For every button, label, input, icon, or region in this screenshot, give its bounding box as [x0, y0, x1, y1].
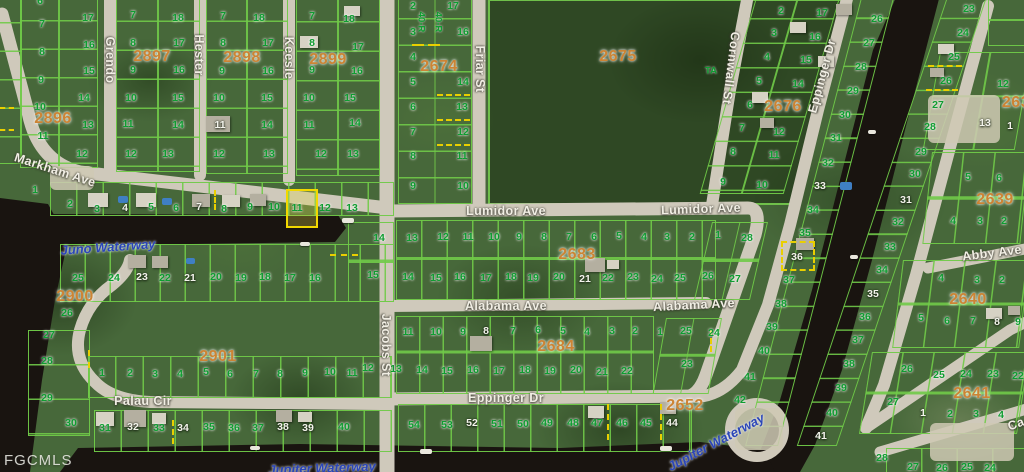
- lot-number[interactable]: 6: [747, 99, 753, 111]
- lot-number[interactable]: 45: [640, 417, 652, 429]
- lot-number[interactable]: 48: [567, 417, 579, 429]
- lot-number[interactable]: 12: [362, 362, 374, 374]
- lot-number[interactable]: 9: [516, 231, 522, 243]
- lot-number[interactable]: 29: [847, 85, 859, 97]
- lot-number[interactable]: 8: [483, 325, 489, 337]
- mls-watermark: FGCMLS: [4, 452, 73, 469]
- lot-number[interactable]: 2: [410, 0, 416, 12]
- lot-number[interactable]: 39: [766, 321, 778, 333]
- lot-number[interactable]: 31: [900, 194, 912, 206]
- lot-number[interactable]: 14: [792, 78, 804, 90]
- lot-number[interactable]: 9: [720, 176, 726, 188]
- lot-number[interactable]: 16: [467, 364, 479, 376]
- lot-number[interactable]: 17: [493, 365, 505, 377]
- lot-number[interactable]: 9: [1015, 316, 1021, 328]
- lot-number[interactable]: 32: [822, 157, 834, 169]
- lot-number[interactable]: 33: [153, 422, 165, 434]
- lot-number[interactable]: 15: [344, 92, 356, 104]
- lot-number[interactable]: 28: [741, 232, 753, 244]
- block-number: 2901: [199, 348, 237, 366]
- block-number: 2675: [599, 48, 637, 66]
- lot-number[interactable]: 25: [961, 461, 973, 472]
- lot-number[interactable]: 17: [480, 272, 492, 284]
- lot-number[interactable]: 13: [979, 117, 991, 129]
- lot-number[interactable]: 6: [37, 0, 43, 7]
- lot-number[interactable]: 39: [835, 382, 847, 394]
- street-label: Eppinger Dr: [468, 391, 544, 405]
- lot-number[interactable]: 14: [78, 92, 90, 104]
- block-number: 2684: [537, 338, 575, 356]
- lot-number[interactable]: 25: [948, 51, 960, 63]
- lot-number[interactable]: 15: [261, 92, 273, 104]
- lot-number[interactable]: 36: [859, 311, 871, 323]
- lot-number[interactable]: 3: [771, 27, 777, 39]
- lot-number[interactable]: 16: [262, 65, 274, 77]
- lot-number[interactable]: 39: [302, 422, 314, 434]
- lot-number[interactable]: 10: [268, 201, 280, 213]
- lot-number[interactable]: 13: [456, 101, 468, 113]
- lot-number[interactable]: 23: [627, 271, 639, 283]
- lot-number[interactable]: 5: [560, 325, 566, 337]
- lot-number[interactable]: 10: [125, 92, 137, 104]
- lot-number[interactable]: 51: [491, 418, 503, 430]
- lot-number[interactable]: 13: [162, 148, 174, 160]
- lot-number[interactable]: 11: [122, 118, 133, 130]
- lot-number[interactable]: 16: [809, 31, 821, 43]
- lot-number[interactable]: 12: [773, 126, 785, 138]
- lot-number[interactable]: 7: [970, 315, 976, 327]
- lot-number[interactable]: 46: [616, 417, 628, 429]
- lot-number[interactable]: 25: [933, 369, 945, 381]
- lot-number[interactable]: 18: [505, 271, 517, 283]
- lot-number[interactable]: 29: [915, 146, 927, 158]
- lot-number[interactable]: 20: [210, 271, 222, 283]
- block-number: 2676: [764, 98, 802, 116]
- plat-annotation: 40-R: [416, 12, 427, 33]
- lot-number[interactable]: 38: [775, 298, 787, 310]
- lot-number[interactable]: 14: [261, 119, 273, 131]
- lot-number[interactable]: 19: [235, 272, 247, 284]
- lot-number[interactable]: 7: [410, 126, 416, 138]
- lot-number[interactable]: 3: [974, 274, 980, 286]
- lot-number[interactable]: 38: [843, 358, 855, 370]
- lot-number[interactable]: 6: [944, 315, 950, 327]
- lot-number[interactable]: 12: [315, 148, 327, 160]
- lot-number[interactable]: 15: [441, 365, 453, 377]
- lot-number[interactable]: 2: [67, 198, 73, 210]
- waterway-label: Jupiter Waterway: [268, 459, 376, 472]
- lot-number[interactable]: 27: [863, 37, 875, 49]
- lot-number[interactable]: 18: [519, 364, 531, 376]
- lot-number[interactable]: 23: [987, 368, 999, 380]
- lot-number[interactable]: 33: [884, 241, 896, 253]
- lot-number[interactable]: 23: [136, 271, 148, 283]
- lot-number[interactable]: 11: [768, 149, 779, 161]
- lot-number[interactable]: 13: [263, 148, 275, 160]
- lot-number[interactable]: 44: [666, 417, 678, 429]
- lot-number[interactable]: 5: [965, 171, 971, 183]
- lot-number[interactable]: 12: [76, 148, 88, 160]
- lot-number[interactable]: 8: [994, 316, 1000, 328]
- lot-number[interactable]: 6: [410, 101, 416, 113]
- lot-number[interactable]: 5: [410, 76, 416, 88]
- lot-number[interactable]: 4: [998, 409, 1004, 421]
- lot-number[interactable]: 25: [72, 272, 84, 284]
- lot-number[interactable]: 2: [127, 367, 133, 379]
- lot-number[interactable]: 22: [1012, 370, 1024, 382]
- lot-number[interactable]: 27: [907, 461, 919, 472]
- lot-number[interactable]: 9: [460, 326, 466, 338]
- parcel-map-canvas[interactable]: 6789101117161514131278910111218171615141…: [0, 0, 1024, 472]
- street-label: Ca: [1006, 415, 1024, 434]
- lot-number[interactable]: 26: [901, 363, 913, 375]
- lot-number[interactable]: 26: [61, 307, 73, 319]
- lot-number[interactable]: 37: [783, 274, 795, 286]
- lot-number[interactable]: 14: [416, 364, 428, 376]
- street-label: Hester: [192, 34, 206, 75]
- lot-number[interactable]: 35: [203, 421, 215, 433]
- street-label: Jacobs St: [379, 314, 393, 377]
- lot-number[interactable]: 31: [830, 132, 842, 144]
- lot-number[interactable]: 12: [457, 126, 469, 138]
- lot-number[interactable]: 5: [756, 75, 762, 87]
- lot-number[interactable]: 7: [196, 201, 202, 213]
- lot-number[interactable]: 14: [349, 117, 361, 129]
- lot-number[interactable]: 14: [402, 271, 414, 283]
- lot-number[interactable]: 16: [173, 64, 185, 76]
- lot-number[interactable]: 26: [702, 270, 714, 282]
- lot-number[interactable]: 24: [984, 462, 996, 472]
- street-label: Friar St: [473, 46, 487, 93]
- lot-number[interactable]: 18: [259, 271, 271, 283]
- lot-number[interactable]: 14: [457, 76, 469, 88]
- lot-number[interactable]: 32: [127, 421, 139, 433]
- lot-number[interactable]: 6: [227, 368, 233, 380]
- lot-number[interactable]: 2: [947, 408, 953, 420]
- lot-number[interactable]: 28: [855, 61, 867, 73]
- lot-number[interactable]: 7: [566, 231, 572, 243]
- plat-annotation: 40-R: [433, 12, 444, 33]
- lot-number[interactable]: 35: [799, 227, 811, 239]
- lot-number[interactable]: 28: [924, 121, 936, 133]
- lot-number[interactable]: 2: [632, 325, 638, 337]
- lot-number[interactable]: 24: [957, 27, 969, 39]
- lot-number[interactable]: 25: [674, 272, 686, 284]
- lot-number[interactable]: 15: [83, 65, 95, 77]
- lot-number[interactable]: 10: [303, 92, 315, 104]
- lot-number[interactable]: 14: [373, 232, 385, 244]
- lot-number[interactable]: 1: [1007, 120, 1013, 132]
- lot-number[interactable]: 7: [130, 9, 136, 21]
- lot-number[interactable]: 8: [730, 146, 736, 158]
- street-label: Lumidor Ave: [466, 204, 546, 218]
- lot-number[interactable]: 15: [172, 92, 184, 104]
- lot-number[interactable]: 3: [152, 368, 158, 380]
- lot-number[interactable]: 4: [641, 231, 647, 243]
- map-labels-layer: 6789101117161514131278910111218171615141…: [0, 0, 1024, 472]
- block-number: 263: [1002, 94, 1024, 112]
- lot-number[interactable]: 9: [410, 180, 416, 192]
- lot-number[interactable]: 37: [252, 422, 264, 434]
- lot-number[interactable]: 11: [456, 150, 467, 162]
- lot-number[interactable]: 24: [651, 273, 663, 285]
- lot-number[interactable]: 27: [43, 329, 55, 341]
- lot-number[interactable]: 1: [99, 367, 105, 379]
- lot-number[interactable]: 13: [406, 232, 418, 244]
- street-label: Abby Ave: [961, 242, 1022, 263]
- lot-number[interactable]: 2: [999, 274, 1005, 286]
- lot-number[interactable]: 17: [816, 7, 828, 19]
- lot-number[interactable]: 9: [247, 201, 253, 213]
- lot-number[interactable]: 10: [488, 231, 500, 243]
- lot-number[interactable]: 2: [778, 5, 784, 17]
- lot-number[interactable]: 4: [584, 326, 590, 338]
- lot-number[interactable]: 6: [996, 172, 1002, 184]
- lot-number[interactable]: 24: [108, 272, 120, 284]
- lot-number[interactable]: 3: [94, 203, 100, 215]
- lot-number[interactable]: 21: [596, 366, 608, 378]
- waterway-label: Jupiter Waterway: [665, 410, 767, 472]
- block-number: 2896: [34, 110, 72, 128]
- lot-number[interactable]: 52: [466, 417, 478, 429]
- lot-number[interactable]: 2: [1001, 215, 1007, 227]
- lot-number[interactable]: 40: [338, 421, 350, 433]
- lot-number[interactable]: 7: [510, 325, 516, 337]
- street-label: Lumidor Ave: [661, 201, 741, 218]
- lot-number[interactable]: 7: [309, 10, 315, 22]
- lot-number[interactable]: 6: [591, 231, 597, 243]
- lot-number[interactable]: 27: [932, 99, 944, 111]
- lot-number[interactable]: 16: [309, 272, 321, 284]
- block-number: 2640: [949, 291, 987, 309]
- lot-number[interactable]: 7: [220, 10, 226, 22]
- lot-number[interactable]: 21: [579, 273, 591, 285]
- lot-number[interactable]: 13: [347, 148, 359, 160]
- lot-number[interactable]: 40: [826, 407, 838, 419]
- lot-number[interactable]: 38: [277, 421, 289, 433]
- lot-number[interactable]: 12: [319, 202, 331, 214]
- lot-number[interactable]: 30: [909, 168, 921, 180]
- lot-number[interactable]: 8: [541, 231, 547, 243]
- lot-number[interactable]: 34: [177, 422, 189, 434]
- lot-number[interactable]: 34: [807, 204, 819, 216]
- lot-number[interactable]: 23: [681, 358, 693, 370]
- lot-number[interactable]: 28: [876, 452, 888, 464]
- lot-number[interactable]: 16: [454, 271, 466, 283]
- lot-number[interactable]: 24: [708, 327, 720, 339]
- street-label: Keesle: [282, 37, 296, 80]
- block-number: 2899: [309, 51, 347, 69]
- lot-number[interactable]: 13: [82, 119, 94, 131]
- block-number: 2639: [976, 191, 1014, 209]
- lot-number[interactable]: 17: [284, 272, 296, 284]
- street-label: Alabama Ave: [653, 296, 736, 314]
- lot-number[interactable]: 41: [815, 430, 827, 442]
- lot-number[interactable]: 28: [41, 355, 53, 367]
- waterway-label: Juno Waterway: [60, 236, 156, 258]
- lot-number[interactable]: 10: [324, 366, 336, 378]
- lot-number[interactable]: 16: [351, 65, 363, 77]
- lot-number[interactable]: 17: [262, 37, 274, 49]
- lot-number[interactable]: 15: [367, 269, 379, 281]
- lot-number[interactable]: 54: [408, 419, 420, 431]
- lot-number[interactable]: 37: [852, 334, 864, 346]
- lot-number[interactable]: 12: [213, 148, 225, 160]
- lot-number[interactable]: 3: [609, 325, 615, 337]
- lot-number[interactable]: 41: [744, 371, 756, 383]
- lot-number[interactable]: 10: [213, 92, 225, 104]
- lot-number[interactable]: 49: [541, 417, 553, 429]
- lot-number[interactable]: 8: [221, 203, 227, 215]
- lot-number[interactable]: 12: [997, 78, 1009, 90]
- lot-number[interactable]: 5: [148, 201, 154, 213]
- lot-number[interactable]: 22: [602, 272, 614, 284]
- lot-number[interactable]: 9: [38, 74, 44, 86]
- lot-number[interactable]: 11: [402, 326, 413, 338]
- lot-number[interactable]: 20: [570, 364, 582, 376]
- lot-number[interactable]: 1: [657, 326, 663, 338]
- lot-number[interactable]: 3: [664, 231, 670, 243]
- lot-number[interactable]: 4: [938, 272, 944, 284]
- lot-number[interactable]: 1: [920, 407, 926, 419]
- lot-number[interactable]: 22: [159, 272, 171, 284]
- lot-number[interactable]: 11: [346, 367, 357, 379]
- lot-number[interactable]: 23: [963, 3, 975, 15]
- lot-number[interactable]: 25: [680, 325, 692, 337]
- lot-number[interactable]: 27: [887, 396, 899, 408]
- lot-number[interactable]: 24: [960, 368, 972, 380]
- lot-number[interactable]: 18: [172, 12, 184, 24]
- lot-number[interactable]: 4: [764, 51, 770, 63]
- lot-number[interactable]: 16: [457, 26, 469, 38]
- lot-number[interactable]: 8: [309, 37, 315, 49]
- lot-number[interactable]: 17: [352, 41, 364, 53]
- lot-number[interactable]: 9: [302, 367, 308, 379]
- lot-number[interactable]: 47: [591, 417, 603, 429]
- lot-number[interactable]: 6: [535, 324, 541, 336]
- lot-number[interactable]: 26: [936, 462, 948, 472]
- lot-number[interactable]: 11: [37, 130, 48, 142]
- lot-number[interactable]: 40: [758, 345, 770, 357]
- lot-number[interactable]: 17: [82, 12, 94, 24]
- lot-number[interactable]: 32: [892, 216, 904, 228]
- lot-number[interactable]: 17: [173, 37, 185, 49]
- lot-number[interactable]: 11: [303, 119, 314, 131]
- lot-number[interactable]: 5: [616, 230, 622, 242]
- street-label: Eppinger Dr: [805, 38, 838, 115]
- lot-number[interactable]: 50: [517, 418, 529, 430]
- plat-annotation: TA: [705, 66, 717, 77]
- lot-number[interactable]: 18: [343, 13, 355, 25]
- lot-number[interactable]: 7: [39, 18, 45, 30]
- lot-number[interactable]: 11: [291, 202, 302, 214]
- lot-number[interactable]: 12: [437, 231, 449, 243]
- street-label: Cornwall St: [720, 31, 743, 105]
- lot-number[interactable]: 7: [253, 368, 259, 380]
- lot-number[interactable]: 26: [940, 75, 952, 87]
- block-number: 2652: [666, 397, 704, 415]
- lot-number[interactable]: 2: [689, 231, 695, 243]
- lot-number[interactable]: 21: [184, 272, 196, 284]
- lot-number[interactable]: 4: [950, 215, 956, 227]
- lot-number[interactable]: 4: [177, 368, 183, 380]
- block-number: 2683: [558, 246, 596, 264]
- lot-number[interactable]: 5: [203, 366, 209, 378]
- lot-number[interactable]: 10: [430, 326, 442, 338]
- lot-number[interactable]: 19: [527, 272, 539, 284]
- lot-number[interactable]: 26: [871, 13, 883, 25]
- lot-number[interactable]: 22: [621, 365, 633, 377]
- lot-number[interactable]: 33: [814, 180, 826, 192]
- lot-number[interactable]: 16: [83, 39, 95, 51]
- lot-number[interactable]: 10: [457, 180, 469, 192]
- lot-number[interactable]: 8: [39, 46, 45, 58]
- street-label: Palau Cir: [114, 394, 172, 408]
- street-label: Alabama Ave: [465, 299, 547, 313]
- lot-number[interactable]: 35: [867, 288, 879, 300]
- lot-number[interactable]: 14: [172, 119, 184, 131]
- lot-number[interactable]: 30: [839, 109, 851, 121]
- lot-number[interactable]: 27: [729, 273, 741, 285]
- street-label: Grendo: [103, 37, 117, 84]
- lot-number[interactable]: 10: [756, 179, 768, 191]
- lot-number[interactable]: 11: [462, 231, 473, 243]
- lot-number[interactable]: 36: [791, 251, 803, 263]
- lot-number[interactable]: 5: [918, 312, 924, 324]
- lot-number[interactable]: 29: [41, 392, 53, 404]
- lot-number[interactable]: 42: [734, 394, 746, 406]
- lot-number[interactable]: 36: [228, 422, 240, 434]
- lot-number[interactable]: 13: [346, 202, 358, 214]
- lot-number[interactable]: 6: [173, 202, 179, 214]
- lot-number[interactable]: 18: [253, 12, 265, 24]
- lot-number[interactable]: 4: [122, 202, 128, 214]
- lot-number[interactable]: 15: [430, 272, 442, 284]
- block-number: 2900: [56, 288, 94, 306]
- lot-number[interactable]: 8: [277, 368, 283, 380]
- lot-number[interactable]: 15: [800, 54, 812, 66]
- lot-number[interactable]: 53: [441, 419, 453, 431]
- block-number: 2898: [223, 49, 261, 67]
- lot-number[interactable]: 3: [977, 215, 983, 227]
- lot-number[interactable]: 8: [220, 37, 226, 49]
- lot-number[interactable]: 1: [715, 229, 721, 241]
- lot-number[interactable]: 17: [447, 0, 459, 12]
- lot-number[interactable]: 4: [410, 51, 416, 63]
- block-number: 2674: [420, 58, 458, 76]
- lot-number[interactable]: 12: [125, 148, 137, 160]
- lot-number[interactable]: 20: [553, 271, 565, 283]
- lot-number[interactable]: 30: [65, 417, 77, 429]
- lot-number[interactable]: 7: [739, 122, 745, 134]
- block-number: 2641: [953, 385, 991, 403]
- lot-number[interactable]: 3: [973, 408, 979, 420]
- block-number: 2897: [133, 48, 171, 66]
- lot-number[interactable]: 8: [410, 150, 416, 162]
- lot-number[interactable]: 1: [32, 184, 38, 196]
- lot-number[interactable]: 34: [876, 264, 888, 276]
- lot-number[interactable]: 31: [99, 422, 111, 434]
- lot-number[interactable]: 11: [214, 119, 225, 131]
- lot-number[interactable]: 19: [544, 365, 556, 377]
